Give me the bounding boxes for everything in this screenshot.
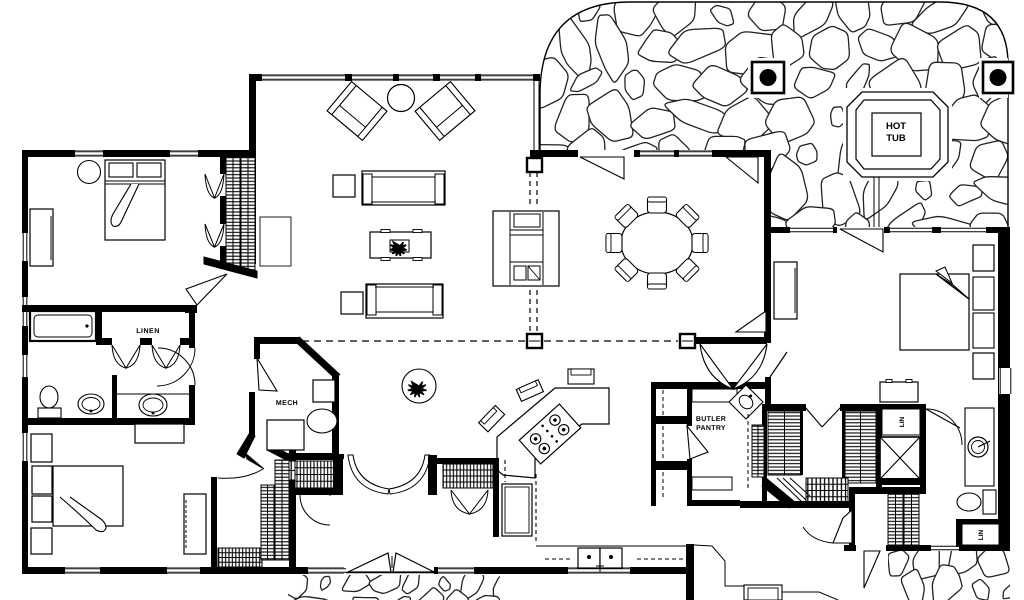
svg-text:LINEN: LINEN [136,328,160,335]
svg-text:TUB: TUB [886,133,906,144]
svg-text:MECH: MECH [276,400,298,407]
svg-text:BUTLER: BUTLER [696,416,726,423]
svg-text:PANTRY: PANTRY [696,425,726,432]
svg-text:HOT: HOT [886,121,906,132]
svg-text:LIN: LIN [978,529,985,540]
svg-text:LIN: LIN [899,416,906,427]
